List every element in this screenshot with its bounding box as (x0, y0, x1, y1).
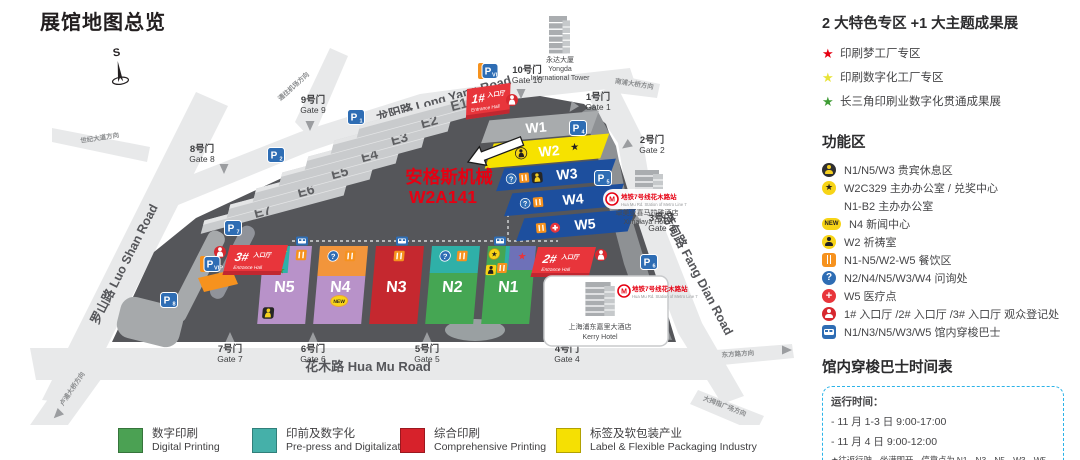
svg-text:5: 5 (607, 180, 610, 186)
parking-p2: P2 (268, 148, 285, 163)
svg-text:Gate 4: Gate 4 (554, 354, 580, 364)
svg-text:Gate 1: Gate 1 (585, 102, 611, 112)
svg-text:Gate 6: Gate 6 (300, 354, 326, 364)
svg-text:地铁7号线花木路站: 地铁7号线花木路站 (632, 284, 688, 293)
svg-text:8: 8 (173, 302, 176, 308)
legend-prepress: 印前及数字化Pre-press and Digitalization (252, 428, 414, 454)
function-item: 1# 入口厅 /2# 入口厅 /3# 入口厅 观众登记处 (822, 307, 1074, 321)
svg-text:1: 1 (360, 119, 363, 125)
svg-text:上海浦东嘉里大酒店: 上海浦东嘉里大酒店 (569, 322, 632, 331)
svg-text:2: 2 (280, 157, 283, 163)
svg-text:6: 6 (653, 264, 656, 270)
venue-map: ★ ? NEW ★ M 龙阳路 Long (0, 0, 820, 425)
office-star-icon: ★ (822, 181, 836, 195)
shuttle-bus-icon (296, 237, 308, 246)
function-item: ★ W2C329 主办办公室 / 兑奖中心 (822, 181, 1074, 195)
svg-text:P: P (228, 224, 235, 235)
svg-text:P: P (207, 260, 214, 271)
star-icon-green: ★ (822, 95, 840, 108)
hall-n1: N1 (481, 246, 536, 324)
svg-text:N2: N2 (441, 278, 463, 296)
shuttle-note: ★往返行驶，坐满即开，停靠点为 N1、N3、N5、W3、W5 (831, 454, 1055, 460)
shuttle-schedule-box: 运行时间： - 11 月 1-3 日 9:00-17:00 - 11 月 4 日… (822, 386, 1064, 460)
svg-text:P: P (164, 296, 171, 307)
parking-p1: P1 (348, 110, 365, 125)
restaurant-icon (393, 251, 404, 261)
vip-lounge-icon (822, 163, 836, 177)
function-item: N1-N5/W2-W5 餐饮区 (822, 253, 1074, 267)
shuttle-hours-2: - 11 月 4 日 9:00-12:00 (831, 434, 1055, 449)
svg-text:P: P (271, 151, 278, 162)
shuttle-bus-icon (822, 325, 836, 339)
vip-lounge-icon (262, 307, 274, 318)
legend-swatch (252, 428, 277, 453)
special-zones-title: 2 大特色专区 +1 大主题成果展 (822, 12, 1074, 33)
booth-annotation-name: 安格斯机械 (405, 167, 493, 187)
info-icon: ? (822, 271, 836, 285)
svg-text:W3: W3 (556, 165, 579, 183)
hall-n3: N3 (369, 246, 424, 324)
svg-text:Yongda: Yongda (548, 66, 572, 73)
parking-p6: P6 (641, 255, 658, 270)
parking-p8: P8 (161, 293, 178, 308)
shuttle-bus-icon (396, 237, 408, 246)
restaurant-icon (344, 251, 355, 261)
svg-text:N1: N1 (497, 278, 519, 296)
svg-text:Entrance Hall: Entrance Hall (233, 265, 263, 271)
legend-label-packaging: 标签及软包装产业Label & Flexible Packaging Indus… (556, 428, 757, 454)
svg-text:W2: W2 (538, 142, 561, 160)
parking-p5: P5 (595, 171, 612, 186)
svg-text:1#: 1# (471, 91, 485, 107)
svg-text:Gate 9: Gate 9 (300, 105, 326, 115)
function-item: N1/N3/N5/W3/W5 馆内穿梭巴士 (822, 325, 1074, 339)
restaurant-icon (456, 251, 467, 261)
svg-text:International Tower: International Tower (530, 75, 590, 82)
svg-text:S: S (112, 47, 121, 60)
registration-icon (822, 307, 836, 321)
svg-text:VIP: VIP (492, 73, 501, 79)
svg-text:7: 7 (237, 230, 240, 236)
svg-text:N3: N3 (385, 278, 407, 296)
parking-vip-south: PVIP (200, 256, 223, 272)
function-item: N1-B2 主办办公室 (822, 199, 1074, 213)
svg-text:Gate 5: Gate 5 (414, 354, 440, 364)
metro-icon (606, 193, 618, 205)
restaurant-icon (519, 172, 530, 183)
svg-text:W5: W5 (574, 215, 597, 233)
star-icon-red: ★ (822, 47, 840, 60)
special-zone-item: ★ 长三角印刷业数字化贯通成果展 (822, 93, 1074, 109)
shuttle-hours-label: 运行时间： (831, 394, 1055, 409)
exhibition-map-page: 展馆地图总览 ★ ? NEW ★ M (0, 0, 1080, 460)
star-icon-red (517, 252, 527, 263)
news-center-icon (330, 296, 348, 307)
spacer-icon (822, 199, 836, 213)
compass: S (108, 46, 129, 85)
svg-text:入口厅: 入口厅 (560, 253, 581, 261)
shuttle-hours-1: - 11 月 1-3 日 9:00-17:00 (831, 414, 1055, 429)
legend-comprehensive: 综合印刷Comprehensive Printing (400, 428, 546, 454)
restaurant-icon (536, 223, 547, 234)
function-item: N1/N5/W3 贵宾休息区 (822, 163, 1074, 177)
svg-text:Gate 7: Gate 7 (217, 354, 243, 364)
hall-n2: N2 (425, 246, 480, 324)
registration-icon (506, 94, 518, 106)
svg-text:W4: W4 (562, 190, 585, 208)
svg-text:P: P (485, 67, 492, 78)
svg-text:Kerry Hotel: Kerry Hotel (582, 334, 617, 341)
page-title: 展馆地图总览 (40, 6, 166, 35)
special-zone-label: 长三角印刷业数字化贯通成果展 (840, 93, 1001, 109)
svg-text:Hua Mu Rd. Station of Metro Li: Hua Mu Rd. Station of Metro Line 7 (632, 294, 698, 299)
svg-text:N4: N4 (329, 278, 351, 296)
function-item: W2 祈祷室 (822, 235, 1074, 249)
svg-text:卓美亚喜马拉雅酒店: 卓美亚喜马拉雅酒店 (616, 208, 679, 217)
legend-swatch (118, 428, 143, 453)
shuttle-schedule-title: 馆内穿梭巴士时间表 (822, 356, 1074, 377)
svg-text:P: P (644, 258, 651, 269)
prayer-icon (822, 235, 836, 249)
hall-n4: N4 (313, 246, 368, 324)
info-icon (520, 198, 531, 209)
legend-swatch (400, 428, 425, 453)
function-areas-title: 功能区 (822, 131, 1074, 152)
svg-text:地铁7号线花木路站: 地铁7号线花木路站 (621, 192, 677, 201)
svg-text:Gate 2: Gate 2 (639, 145, 665, 155)
svg-text:N5: N5 (273, 278, 295, 296)
star-icon (570, 142, 580, 154)
svg-text:Hua Mu Rd. Station of Metro Li: Hua Mu Rd. Station of Metro Line 7 (621, 202, 687, 207)
special-zone-item: ★ 印刷数字化工厂专区 (822, 69, 1074, 85)
booth-annotation-number: W2A141 (409, 187, 477, 207)
svg-text:P: P (598, 174, 605, 185)
parking-p4: P4 (570, 121, 587, 136)
svg-text:永达大厦: 永达大厦 (546, 55, 574, 64)
special-zone-label: 印刷梦工厂专区 (840, 45, 921, 61)
halls-n: N5 N4 N3 N2 (257, 246, 536, 324)
registration-icon (595, 249, 607, 261)
svg-text:Entrance Hall: Entrance Hall (541, 267, 571, 273)
entrance-2: 2# 入口厅 Entrance Hall (531, 247, 596, 277)
restaurant-icon (533, 197, 544, 208)
svg-text:Gate 8: Gate 8 (189, 154, 215, 164)
legend-swatch (556, 428, 581, 453)
special-zone-label: 印刷数字化工厂专区 (840, 69, 944, 85)
special-zone-item: ★ 印刷梦工厂专区 (822, 45, 1074, 61)
medical-icon: + (822, 289, 836, 303)
svg-text:P: P (573, 124, 580, 135)
legend-digital-printing: 数字印刷Digital Printing (118, 428, 220, 454)
restaurant-icon (822, 253, 836, 267)
restaurant-icon (296, 250, 307, 260)
svg-text:VIP: VIP (214, 266, 223, 272)
metro-station-north: 地铁7号线花木路站 Hua Mu Rd. Station of Metro Li… (603, 189, 687, 209)
svg-text:W1: W1 (525, 118, 548, 136)
parking-p7: P7 (225, 221, 242, 236)
news-center-icon: NEW (822, 218, 841, 230)
svg-text:Ximalaya Hotel: Ximalaya Hotel (623, 219, 671, 226)
function-item: ? N2/N4/N5/W3/W4 问询处 (822, 271, 1074, 285)
function-item: + W5 医疗点 (822, 289, 1074, 303)
svg-text:入口厅: 入口厅 (252, 251, 273, 259)
parking-vip-north: PVIP (478, 63, 501, 79)
right-panel: 2 大特色专区 +1 大主题成果展 ★ 印刷梦工厂专区 ★ 印刷数字化工厂专区 … (822, 8, 1074, 460)
person-icon (485, 265, 496, 275)
star-icon-yellow: ★ (822, 71, 840, 84)
restaurant-icon (497, 263, 508, 273)
info-icon (506, 173, 517, 184)
shuttle-bus-icon (494, 237, 506, 246)
function-item: NEW N4 新闻中心 (822, 217, 1074, 231)
entrance-1: 1# 入口厅 Entrance Hall (466, 83, 511, 120)
road-century-stub (52, 128, 150, 162)
metro-icon (618, 285, 630, 297)
entrance-3: 3# 入口厅 Entrance Hall (223, 245, 288, 275)
svg-text:P: P (351, 113, 358, 124)
vip-lounge-icon (531, 172, 543, 184)
